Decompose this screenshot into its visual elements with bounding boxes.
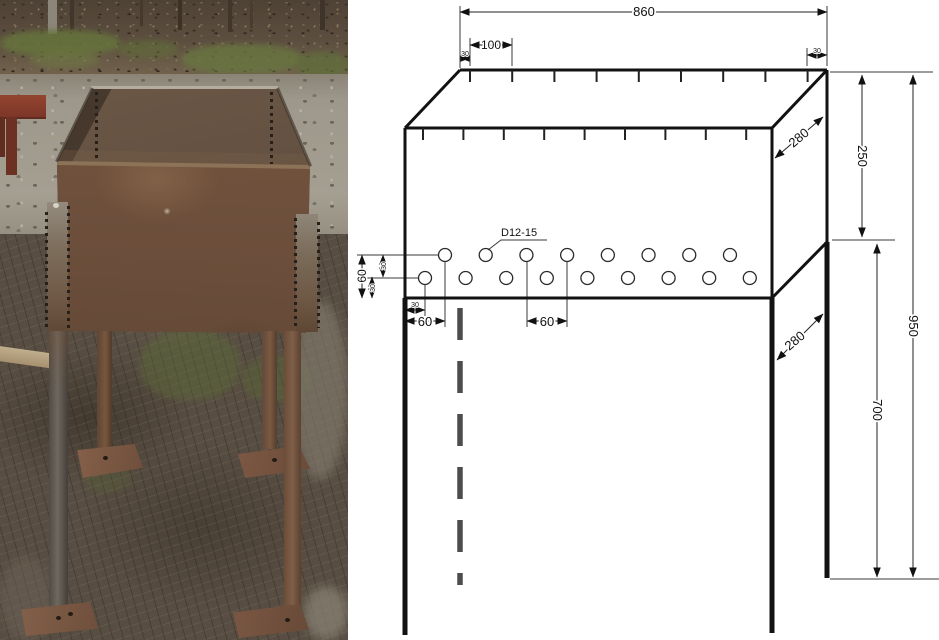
air-hole [520, 249, 533, 262]
callout-leader [488, 240, 547, 250]
dim-30-left: 30 [461, 51, 469, 58]
air-hole [419, 272, 432, 285]
air-hole [683, 249, 696, 262]
air-hole [459, 272, 472, 285]
air-hole [581, 272, 594, 285]
photo-grass-patch [182, 44, 302, 74]
left-top-diagonal [405, 70, 460, 128]
air-hole [479, 249, 492, 262]
tree-trunk [70, 0, 74, 30]
air-hole [703, 272, 716, 285]
dim-250: 250 [855, 145, 870, 167]
air-hole [439, 249, 452, 262]
dim-280-leg: 280 [782, 328, 808, 353]
dim-280-top: 280 [786, 125, 812, 150]
brazier-photo [0, 0, 348, 640]
photo-leg-back-right [262, 331, 277, 449]
air-holes-bottom-row [419, 272, 757, 285]
air-hole [662, 272, 675, 285]
photo-flange-left [47, 202, 68, 333]
air-hole [642, 249, 655, 262]
box-outline [405, 70, 827, 635]
screenshot: 860 100 30 30 280 250 950 700 280 60 30 … [0, 0, 939, 640]
photo-grass-patch [118, 40, 178, 58]
photo-weld-seam [294, 218, 297, 330]
photo-light-patch [304, 586, 348, 640]
extension-lines [357, 6, 939, 579]
photo-weld-seam [270, 92, 273, 164]
photo-bench-seat [0, 95, 46, 119]
photo-weld-seam [95, 92, 98, 160]
air-hole [601, 249, 614, 262]
side-bottom-diagonal [772, 242, 827, 298]
photo-weld-seam [45, 212, 48, 330]
tree-trunk [320, 0, 325, 30]
tree-trunk [178, 0, 182, 30]
tree-trunk [228, 0, 232, 32]
air-hole [500, 272, 513, 285]
air-hole [743, 272, 756, 285]
dim-950: 950 [906, 315, 921, 337]
rivet-ticks-front-edge [423, 128, 746, 140]
photo-bench-leg [6, 117, 17, 175]
dim-60-vert: 60 [355, 269, 369, 283]
tree-trunk [140, 0, 143, 26]
air-holes-top-row [439, 249, 737, 262]
dim-30-edgegap: 30 [411, 302, 419, 309]
dim-860: 860 [633, 4, 655, 19]
dim-700: 700 [870, 399, 885, 421]
dim-30-right: 30 [813, 48, 821, 55]
air-hole [723, 249, 736, 262]
dim-30-bottomgap: 30 [370, 284, 377, 292]
photo-weld-spot [53, 203, 59, 208]
brazier-dimension-drawing: 860 100 30 30 280 250 950 700 280 60 30 … [355, 0, 939, 640]
photo-flange-right [296, 214, 318, 332]
photo-weld-seam [67, 206, 70, 332]
air-hole [540, 272, 553, 285]
dim-60-pitch: 60 [540, 314, 554, 329]
photo-grass-tuft [140, 330, 240, 400]
rivet-ticks-back-edge [470, 70, 808, 82]
hole-callout: D12-15 [501, 227, 537, 239]
photo-leg-back-left [97, 331, 112, 451]
dimension-labels: 860 100 30 30 280 250 950 700 280 60 30 … [355, 4, 921, 421]
dim-30-rowgap: 30 [381, 262, 388, 270]
air-hole [622, 272, 635, 285]
photo-leg-front-right [284, 331, 301, 609]
dim-60-first: 60 [418, 314, 432, 329]
tree-trunk [250, 0, 253, 28]
dim-100: 100 [481, 38, 501, 52]
photo-weld-seam [317, 222, 320, 328]
photo-brazier-back-rim [91, 86, 278, 89]
photo-leg-front-left [49, 331, 68, 607]
photo-bench-leg [0, 117, 5, 157]
air-hole [561, 249, 574, 262]
photo-grass-patch [30, 52, 100, 68]
tree-trunk [48, 0, 57, 34]
right-top-diagonal [772, 70, 827, 128]
